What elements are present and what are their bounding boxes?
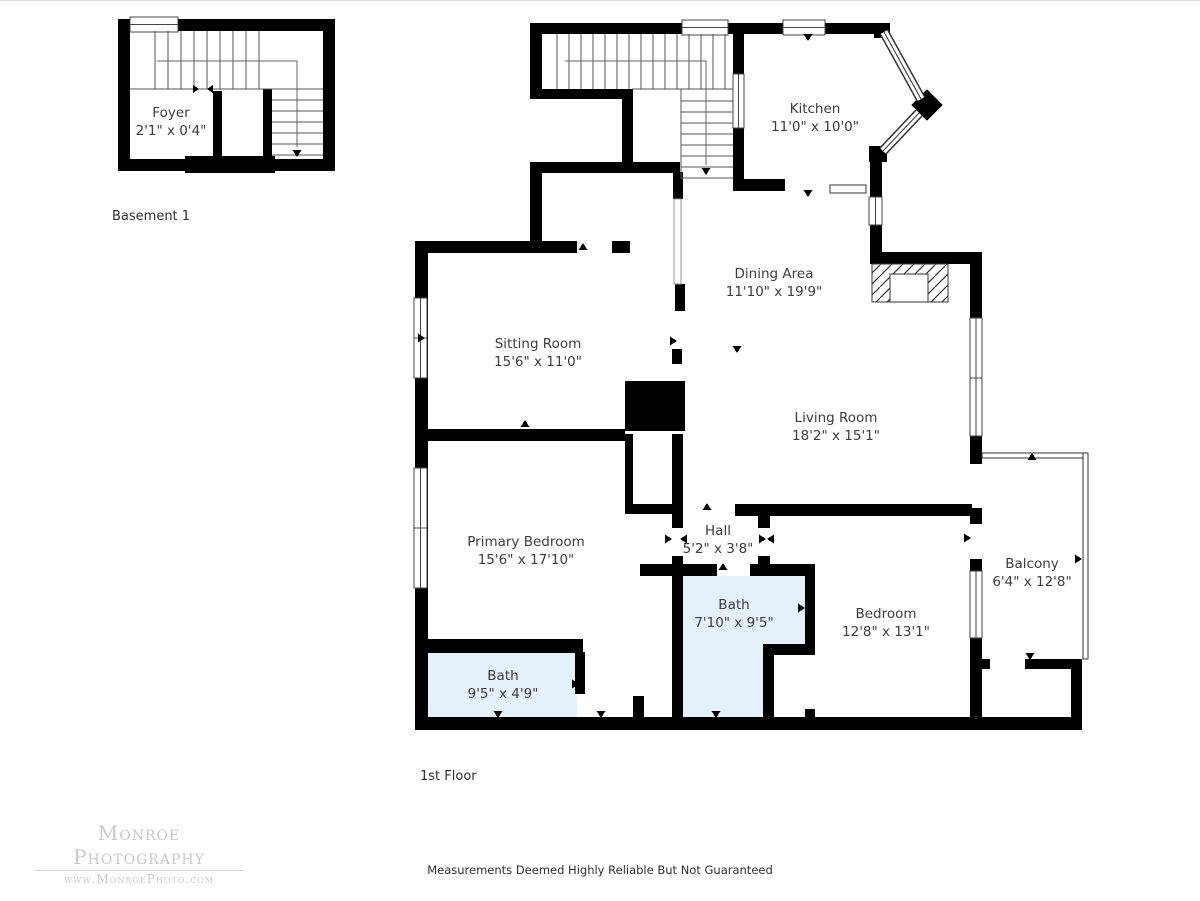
room-dims: 12'8" x 13'1" [842, 623, 930, 641]
first-floor-title: 1st Floor [420, 769, 477, 784]
bay-window [883, 32, 921, 151]
room-dims: 15'6" x 11'0" [494, 353, 582, 371]
disclaimer-text: Measurements Deemed Highly Reliable But … [0, 863, 1200, 877]
room-label-foyer: Foyer2'1" x 0'4" [136, 104, 207, 140]
room-name: Primary Bedroom [467, 533, 585, 551]
room-label-bath-small: Bath9'5" x 4'9" [468, 667, 539, 703]
kitchen-counter [830, 185, 866, 193]
room-dims: 5'2" x 3'8" [683, 540, 754, 558]
glass-partition [674, 199, 681, 284]
room-label-primary-bedroom: Primary Bedroom15'6" x 17'10" [467, 533, 585, 569]
fireplace [872, 264, 948, 302]
room-name: Balcony [992, 555, 1071, 573]
room-dims: 6'4" x 12'8" [992, 573, 1071, 591]
room-dims: 7'10" x 9'5" [694, 614, 773, 632]
room-label-kitchen: Kitchen11'0" x 10'0" [771, 100, 859, 136]
room-label-dining-area: Dining Area11'10" x 19'9" [726, 265, 823, 301]
room-dims: 18'2" x 15'1" [792, 427, 880, 445]
basement-window [130, 17, 178, 32]
room-name: Living Room [792, 409, 880, 427]
room-label-hall: Hall5'2" x 3'8" [683, 522, 754, 558]
room-name: Bedroom [842, 605, 930, 623]
room-dims: 2'1" x 0'4" [136, 122, 207, 140]
room-dims: 9'5" x 4'9" [468, 685, 539, 703]
room-name: Bath [468, 667, 539, 685]
floorplan-page: Basement 1 1st Floor Foyer2'1" x 0'4"Kit… [0, 0, 1200, 901]
first-floor-stairs [557, 34, 733, 179]
basement-title: Basement 1 [112, 209, 190, 224]
room-dims: 11'10" x 19'9" [726, 283, 823, 301]
room-name: Sitting Room [494, 335, 582, 353]
room-label-balcony: Balcony6'4" x 12'8" [992, 555, 1071, 591]
room-name: Foyer [136, 104, 207, 122]
stairs-down-arrow [293, 150, 302, 157]
stairs-down-arrow [702, 168, 711, 175]
room-dims: 11'0" x 10'0" [771, 118, 859, 136]
room-name: Dining Area [726, 265, 823, 283]
room-name: Hall [683, 522, 754, 540]
room-label-bath-main: Bath7'10" x 9'5" [694, 596, 773, 632]
room-dims: 15'6" x 17'10" [467, 551, 585, 569]
room-name: Bath [694, 596, 773, 614]
room-name: Kitchen [771, 100, 859, 118]
basement-plan [118, 17, 335, 173]
room-label-living-room: Living Room18'2" x 15'1" [792, 409, 880, 445]
room-label-bedroom: Bedroom12'8" x 13'1" [842, 605, 930, 641]
chimney-block [625, 381, 685, 431]
room-label-sitting-room: Sitting Room15'6" x 11'0" [494, 335, 582, 371]
